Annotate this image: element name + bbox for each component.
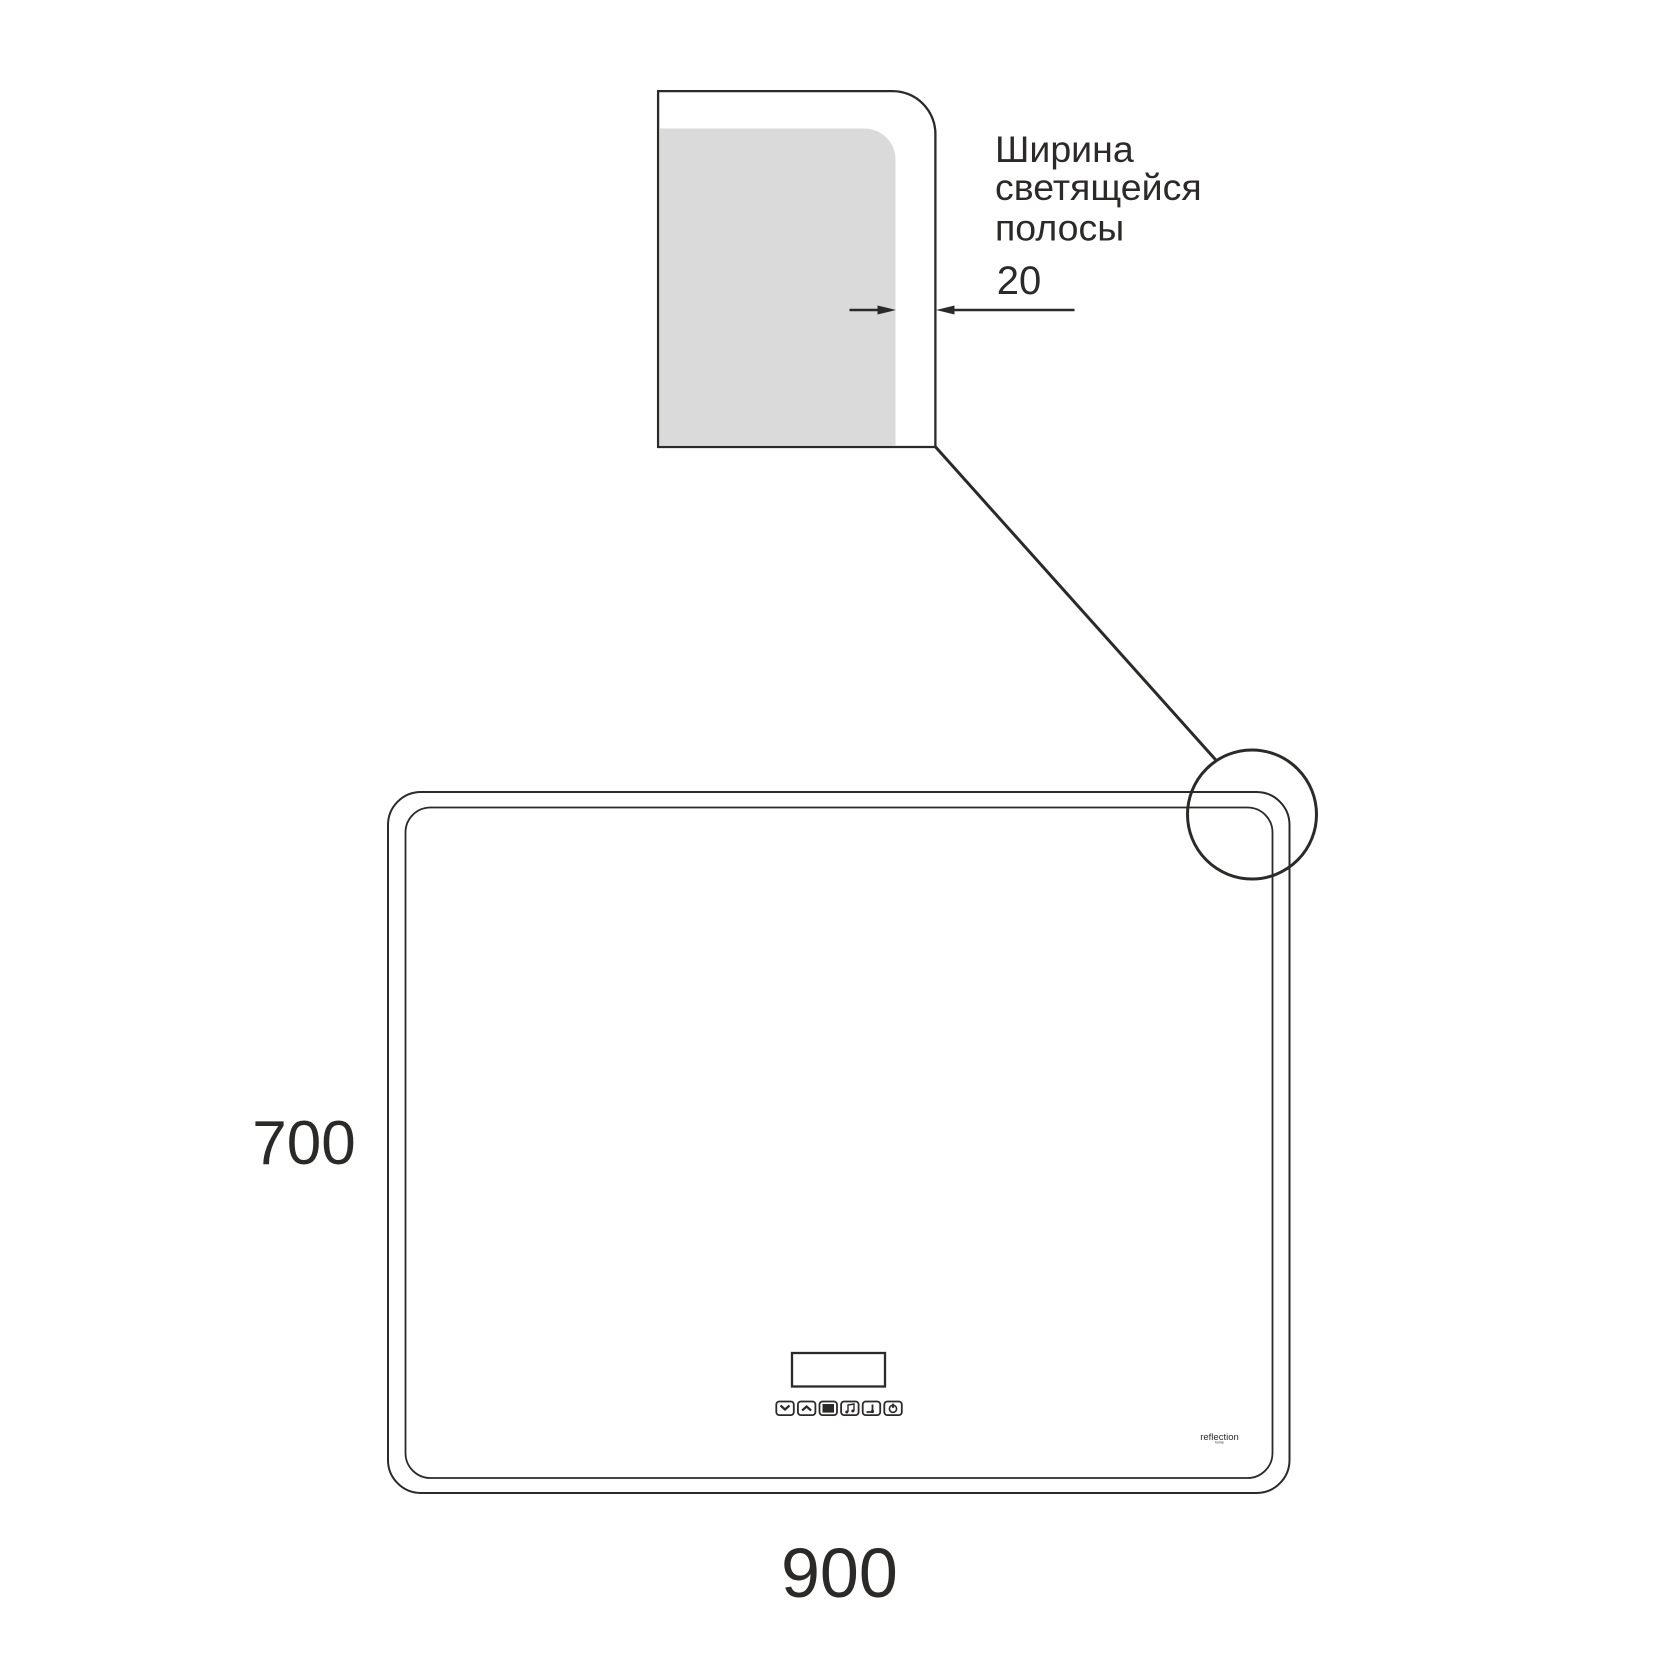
svg-text:Ширина: Ширина	[995, 128, 1134, 170]
svg-text:700: 700	[252, 1109, 355, 1178]
svg-text:полосы: полосы	[995, 206, 1124, 248]
svg-text:900: 900	[781, 1534, 898, 1612]
svg-text:светящейся: светящейся	[995, 166, 1202, 208]
svg-text:home: home	[1215, 1441, 1224, 1445]
svg-text:20: 20	[997, 259, 1042, 303]
